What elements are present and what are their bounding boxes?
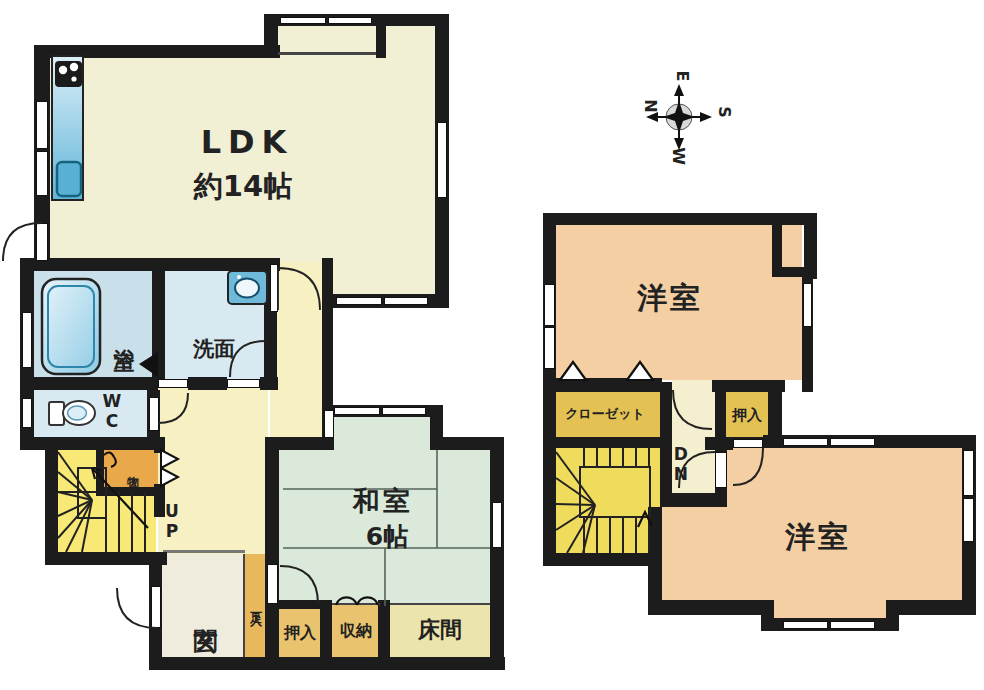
- label-futon-closet-1f: 押入: [284, 625, 316, 642]
- compass-north: N: [641, 99, 660, 112]
- label-tatami-size: 6帖: [366, 524, 408, 550]
- label-entrance: 玄関: [192, 609, 217, 611]
- toilet-icon: [49, 401, 95, 425]
- stove-icon: [55, 61, 82, 87]
- label-shoe-cabinet: 下足入: [250, 602, 263, 605]
- closet-door-triangles: [560, 362, 653, 380]
- label-tatami-room: 和室: [353, 487, 413, 515]
- bathtub-icon: [42, 279, 100, 374]
- compass-west: W: [669, 147, 688, 165]
- door-arc: [117, 588, 157, 628]
- folding-door-icon: [336, 597, 378, 605]
- floor-plan-canvas: E N S W LDK 約14帖 浴室 洗面 WC 物入 UP 玄関 下足入 和…: [0, 0, 984, 690]
- label-western-room-1: 洋室: [637, 282, 703, 314]
- label-ldk-size: 約14帖: [194, 171, 292, 201]
- door-arc: [158, 393, 188, 423]
- door-arc: [280, 566, 318, 604]
- door-arc: [3, 223, 41, 261]
- stairs-2f-treads: [556, 448, 650, 553]
- compass-rose: E N S W: [641, 71, 734, 166]
- bifold-door-icon: [161, 450, 178, 486]
- compass-south: S: [715, 106, 734, 118]
- kitchen-sink-icon: [57, 162, 81, 196]
- symbols-overlay: E N S W: [0, 0, 984, 690]
- label-washroom: 洗面: [193, 338, 235, 360]
- label-futon-closet-2f: 押入: [732, 408, 762, 424]
- compass-east: E: [673, 71, 692, 82]
- washbasin-icon: [228, 271, 267, 304]
- door-arc: [230, 341, 266, 377]
- label-wc: WC: [102, 391, 120, 431]
- kitchen-counter: [52, 56, 83, 200]
- door-arc: [278, 268, 320, 310]
- door-arc: [733, 448, 763, 485]
- label-stairs-down: DN: [671, 444, 689, 484]
- label-bath: 浴室: [113, 332, 135, 334]
- label-storage: 収納: [340, 623, 372, 640]
- label-alcove: 床間: [418, 618, 462, 641]
- bath-door-icon: [139, 352, 158, 377]
- door-arc: [673, 390, 712, 429]
- label-western-room-2: 洋室: [785, 521, 851, 553]
- label-ldk: LDK: [201, 126, 294, 160]
- label-stairs-up: UP: [162, 501, 180, 541]
- label-closet-2f: クローゼット: [565, 407, 645, 421]
- label-storage-small: 物入: [127, 466, 140, 468]
